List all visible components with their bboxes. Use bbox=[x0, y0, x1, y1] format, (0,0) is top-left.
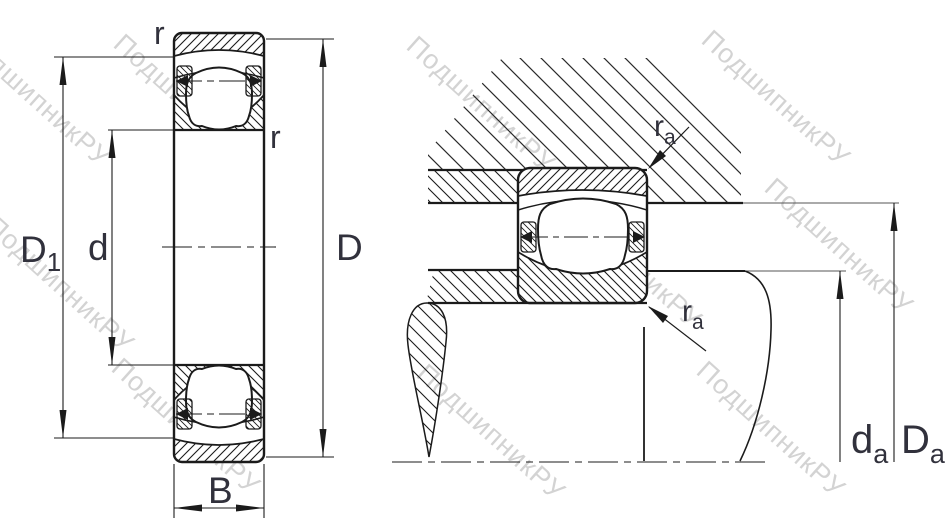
label-d: d bbox=[88, 227, 109, 268]
bearing-drawing-canvas: ПодшипникРУ ПодшипникРУ ПодшипникРУ Подш… bbox=[0, 0, 951, 532]
shaft-break-section bbox=[407, 303, 446, 457]
watermark-text: ПодшипникРУ bbox=[0, 24, 116, 172]
watermark-text: ПодшипникРУ bbox=[691, 355, 851, 503]
watermarks: ПодшипникРУ ПодшипникРУ ПодшипникРУ Подш… bbox=[0, 24, 919, 506]
label-r-inner: r bbox=[270, 119, 281, 155]
housing-shoulder-section bbox=[428, 170, 518, 203]
left-view-cross-section: D1 d D B r bbox=[20, 15, 363, 518]
shaft-shoulder-section bbox=[426, 270, 518, 303]
label-r-outer: r bbox=[154, 15, 165, 51]
label-D: D bbox=[336, 227, 363, 268]
bearing-technical-drawing-page: ПодшипникРУ ПодшипникРУ ПодшипникРУ Подш… bbox=[0, 0, 951, 532]
dimension-Da: Da bbox=[891, 203, 946, 469]
label-Da: Da bbox=[901, 418, 946, 469]
label-D1: D1 bbox=[20, 229, 61, 277]
label-da: da bbox=[851, 418, 889, 469]
dimension-D: D bbox=[266, 39, 363, 457]
label-B: B bbox=[208, 470, 233, 511]
barrel-roller bbox=[538, 199, 628, 274]
barrel-roller-bottom bbox=[186, 366, 252, 428]
barrel-roller-top bbox=[186, 68, 252, 130]
